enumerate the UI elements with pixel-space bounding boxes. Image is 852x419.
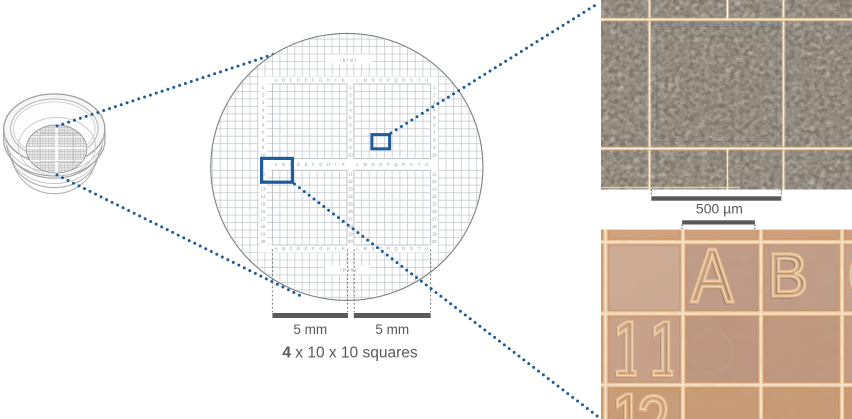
- svg-text:20: 20: [432, 239, 437, 244]
- svg-text:C: C: [289, 246, 292, 251]
- svg-text:I: I: [335, 246, 336, 251]
- svg-text:E: E: [305, 162, 308, 167]
- svg-text:17: 17: [261, 216, 266, 221]
- svg-text:M: M: [364, 78, 368, 83]
- svg-text:P: P: [387, 162, 390, 167]
- svg-text:P: P: [387, 246, 390, 251]
- svg-text:5 mm: 5 mm: [293, 322, 327, 337]
- svg-text:E: E: [305, 78, 308, 83]
- svg-text:T: T: [418, 162, 421, 167]
- svg-text:G: G: [319, 162, 322, 167]
- svg-text:15: 15: [348, 201, 353, 206]
- svg-text:K: K: [342, 246, 345, 251]
- svg-text:R: R: [402, 246, 405, 251]
- svg-text:D: D: [297, 78, 300, 83]
- svg-text:13: 13: [348, 187, 353, 192]
- svg-text:10: 10: [348, 152, 353, 157]
- svg-text:D: D: [297, 162, 300, 167]
- svg-text:B: B: [282, 246, 285, 251]
- svg-text:19: 19: [432, 231, 437, 236]
- svg-text:13: 13: [432, 187, 437, 192]
- svg-text:N: N: [371, 162, 374, 167]
- svg-text:18: 18: [261, 224, 266, 229]
- svg-text:C: C: [289, 78, 292, 83]
- svg-text:N: N: [371, 78, 374, 83]
- svg-text:R: R: [402, 162, 405, 167]
- svg-text:U: U: [425, 246, 428, 251]
- svg-text:12: 12: [348, 179, 353, 184]
- svg-text:N: N: [371, 246, 374, 251]
- svg-text:U: U: [425, 78, 428, 83]
- svg-text:H: H: [327, 246, 330, 251]
- svg-text:15: 15: [432, 201, 437, 206]
- svg-text:I: I: [335, 162, 336, 167]
- svg-text:4 x 10 x 10 squares: 4 x 10 x 10 squares: [282, 345, 418, 362]
- svg-text:11: 11: [348, 172, 353, 177]
- svg-text:F: F: [312, 78, 315, 83]
- svg-text:T: T: [418, 246, 421, 251]
- svg-text:17: 17: [348, 216, 353, 221]
- svg-text:P: P: [387, 78, 390, 83]
- svg-text:10: 10: [432, 152, 437, 157]
- svg-text:15: 15: [261, 201, 266, 206]
- svg-text:S: S: [410, 246, 413, 251]
- svg-text:D: D: [297, 246, 300, 251]
- svg-text:I: I: [335, 78, 336, 83]
- svg-text:E: E: [305, 246, 308, 251]
- svg-text:10: 10: [261, 152, 266, 157]
- svg-text:20: 20: [348, 239, 353, 244]
- svg-text:B: B: [282, 162, 285, 167]
- svg-text:B: B: [282, 78, 285, 83]
- svg-text:H: H: [327, 162, 330, 167]
- svg-text:G: G: [319, 78, 322, 83]
- svg-text:ibidi: ibidi: [340, 58, 358, 64]
- svg-text:500 µm: 500 µm: [696, 201, 743, 217]
- svg-text:M: M: [364, 162, 368, 167]
- svg-text:K: K: [342, 162, 345, 167]
- svg-text:17: 17: [432, 216, 437, 221]
- svg-text:19: 19: [348, 231, 353, 236]
- svg-text:5 mm: 5 mm: [375, 322, 409, 337]
- svg-text:M: M: [364, 246, 368, 251]
- svg-text:H: H: [327, 78, 330, 83]
- svg-text:F: F: [312, 162, 315, 167]
- svg-text:16: 16: [348, 209, 353, 214]
- svg-text:18: 18: [432, 224, 437, 229]
- svg-text:R: R: [402, 78, 405, 83]
- svg-text:14: 14: [432, 194, 437, 199]
- svg-text:16: 16: [432, 209, 437, 214]
- svg-text:11: 11: [432, 172, 437, 177]
- svg-text:A: A: [275, 162, 278, 167]
- svg-text:S: S: [410, 162, 413, 167]
- svg-text:G: G: [319, 246, 322, 251]
- svg-text:19: 19: [261, 231, 266, 236]
- svg-text:14: 14: [348, 194, 353, 199]
- svg-text:16: 16: [261, 209, 266, 214]
- svg-text:12: 12: [432, 179, 437, 184]
- svg-text:U: U: [425, 162, 428, 167]
- svg-text:14: 14: [261, 194, 266, 199]
- svg-text:20: 20: [261, 239, 266, 244]
- svg-text:F: F: [312, 246, 315, 251]
- svg-text:T: T: [418, 78, 421, 83]
- svg-text:K: K: [342, 78, 345, 83]
- svg-text:S: S: [410, 78, 413, 83]
- svg-text:13: 13: [261, 187, 266, 192]
- svg-text:A: A: [275, 78, 278, 83]
- svg-text:A: A: [275, 246, 278, 251]
